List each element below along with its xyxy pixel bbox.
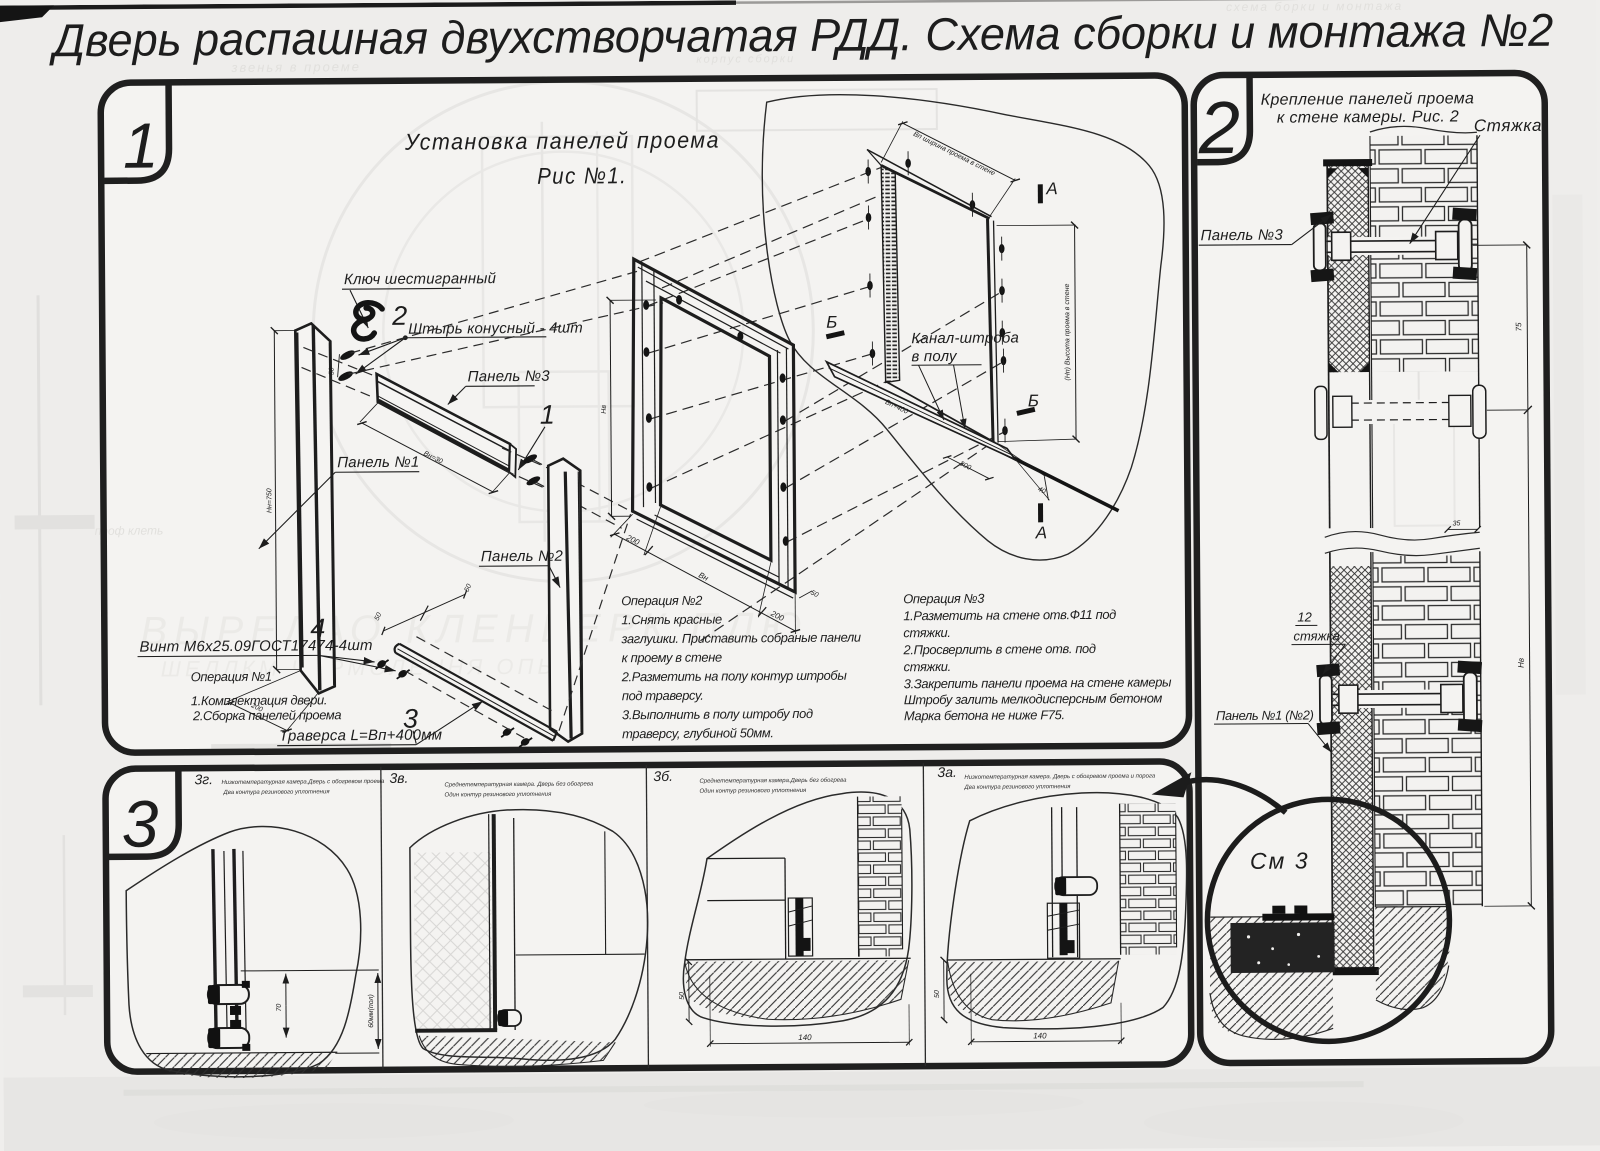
svg-text:3: 3 [403,704,418,734]
svg-text:Дверь распашная двухстворчатая: Дверь распашная двухстворчатая РДД. Схем… [48,4,1553,67]
svg-text:1.Комплектация двери.: 1.Комплектация двери. [191,692,327,708]
svg-text:Марка бетона не ниже F75.: Марка бетона не ниже F75. [904,707,1065,723]
svg-text:50: 50 [679,992,686,1000]
svg-text:3г.: 3г. [194,771,213,787]
svg-text:3в.: 3в. [389,770,408,786]
svg-text:См 3: См 3 [1250,847,1310,873]
svg-text:35: 35 [1453,520,1461,527]
svg-text:Среднетемпературная камера.Две: Среднетемпературная камера.Дверь без обо… [699,778,847,785]
svg-text:к проему в стене: к проему в стене [622,650,722,666]
svg-text:Два контура резинового уплотне: Два контура резинового уплотнения [963,784,1071,791]
svg-text:Операция №2: Операция №2 [621,593,702,609]
svg-text:2.Сборка панелей проема: 2.Сборка панелей проема [192,707,341,723]
svg-text:Установка панелей проема: Установка панелей проема [404,127,720,155]
svg-text:Панель №1: Панель №1 [337,454,419,472]
svg-text:Нн=750: Нн=750 [266,488,273,513]
svg-text:Нв: Нв [601,405,608,414]
svg-text:3: 3 [121,786,159,860]
svg-text:140: 140 [1033,1031,1047,1040]
svg-text:Низкотемпературная камера.Двер: Низкотемпературная камера.Дверь с обогре… [221,779,385,786]
svg-text:2: 2 [391,301,407,331]
svg-text:Ключ шестигранный: Ключ шестигранный [344,270,497,288]
svg-text:Б: Б [826,313,838,332]
svg-text:в полу: в полу [911,348,958,365]
svg-text:3.Выполнить в полу штробу под: 3.Выполнить в полу штробу под [622,706,813,722]
svg-text:(Нп) Высота проема в стене: (Нп) Высота проема в стене [1064,284,1072,381]
svg-text:Операция №3: Операция №3 [903,591,985,607]
svg-text:3а.: 3а. [937,764,957,780]
svg-text:траверсу, глубиной 50мм.: траверсу, глубиной 50мм. [622,725,774,741]
svg-text:140: 140 [798,1033,812,1042]
svg-text:60мм(пол): 60мм(пол) [368,994,375,1028]
svg-text:стяжки.: стяжки. [904,659,951,674]
svg-text:Крепление панелей проема: Крепление панелей проема [1261,90,1475,108]
svg-text:Винт М6х25.09ГОСТ17474-4шт: Винт М6х25.09ГОСТ17474-4шт [139,637,372,656]
svg-text:А: А [1045,179,1058,198]
svg-text:Операция №1: Операция №1 [191,669,272,685]
svg-text:Штробу залить мелкодисперсным: Штробу залить мелкодисперсным бетоном [904,690,1163,707]
svg-text:12: 12 [1297,609,1312,624]
svg-text:Один контур резинового уплотне: Один контур резинового уплотнения [445,792,553,799]
svg-text:Среднетемпературная камера. Дв: Среднетемпературная камера. Дверь без об… [444,781,593,788]
svg-text:Стяжка: Стяжка [1474,116,1542,135]
svg-text:70: 70 [276,1004,283,1012]
svg-text:50: 50 [934,990,941,998]
svg-text:стяжка: стяжка [1293,628,1340,643]
svg-text:75: 75 [1514,322,1523,332]
svg-text:Рис №1.: Рис №1. [537,162,627,189]
svg-text:Панель №3: Панель №3 [1201,227,1284,245]
svg-text:к стене камеры. Рис. 2: к стене камеры. Рис. 2 [1277,108,1459,126]
svg-text:А: А [1035,523,1048,542]
svg-text:2: 2 [1198,86,1241,169]
svg-text:Б: Б [1028,391,1040,410]
svg-text:3б.: 3б. [653,768,673,784]
svg-text:4: 4 [310,613,325,643]
svg-text:Нв: Нв [1517,658,1526,668]
svg-text:50: 50 [329,367,336,375]
svg-text:1: 1 [123,109,159,181]
svg-text:2.Разметить на полу контур штр: 2.Разметить на полу контур штробы [621,668,848,685]
svg-text:1: 1 [540,400,555,430]
svg-text:Один контур резинового уплотне: Один контур резинового уплотнения [699,788,807,795]
svg-text:Панель №1 (№2): Панель №1 (№2) [1216,707,1314,723]
svg-text:1.Снять красные: 1.Снять красные [621,612,722,628]
svg-text:2.Просверлить в стене отв. п: 2.Просверлить в стене отв. под [902,641,1095,657]
svg-text:1.Разметить на стене отв.Ф11 п: 1.Разметить на стене отв.Ф11 под [903,607,1116,623]
svg-text:Два контура резинового уплотне: Два контура резинового уплотнения [222,789,330,796]
svg-text:Канал-штроба: Канал-штроба [911,329,1019,347]
svg-text:под траверсу.: под траверсу. [622,688,704,704]
svg-text:стяжки.: стяжки. [903,625,950,640]
svg-text:заглушки. Приставить собраные: заглушки. Приставить собраные панели [620,630,861,647]
svg-text:Панель №2: Панель №2 [481,548,564,566]
svg-text:Панель №3: Панель №3 [468,368,551,386]
svg-text:3.Закрепить панели проема на с: 3.Закрепить панели проема на стене камер… [904,674,1172,691]
